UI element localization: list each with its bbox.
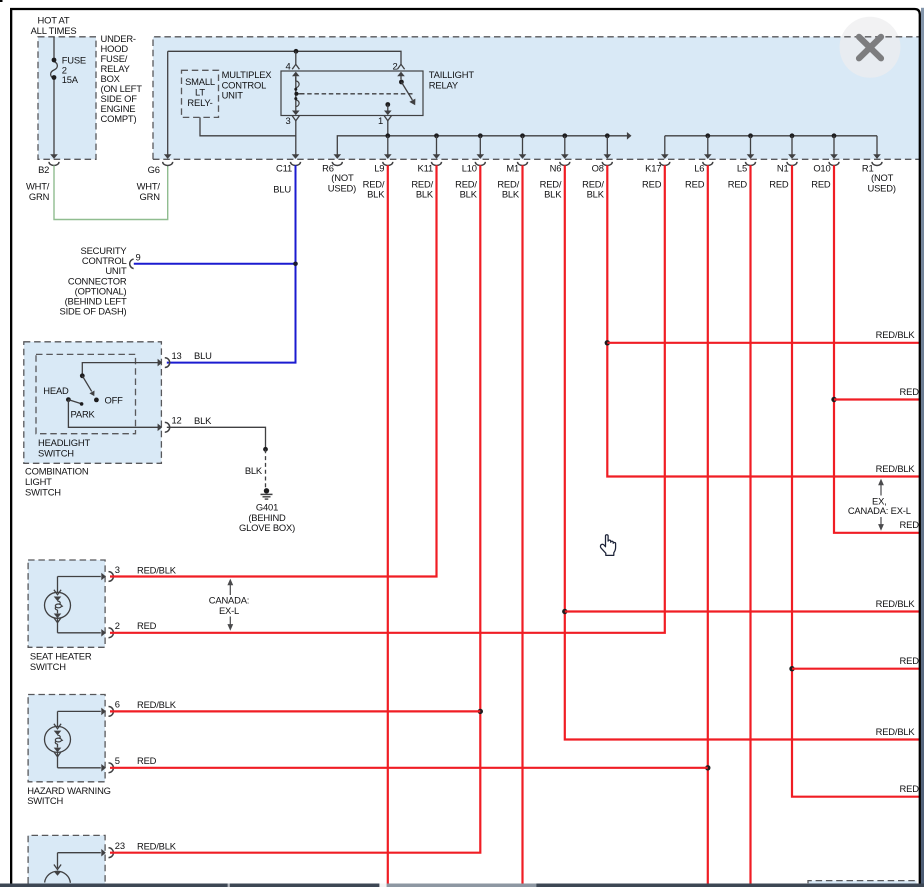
svg-text:SIDE OF DASH): SIDE OF DASH) <box>60 306 127 317</box>
svg-text:BLK: BLK <box>416 189 434 200</box>
svg-text:RED/BLK: RED/BLK <box>137 699 177 710</box>
svg-text:5: 5 <box>115 755 120 766</box>
svg-text:BLK: BLK <box>544 189 562 200</box>
svg-text:CANADA: EX-L: CANADA: EX-L <box>848 505 911 516</box>
svg-text:GRN: GRN <box>140 191 160 202</box>
svg-text:N1: N1 <box>777 162 789 173</box>
svg-text:L9: L9 <box>374 162 384 173</box>
svg-text:RED: RED <box>137 755 157 766</box>
svg-text:K11: K11 <box>418 162 433 173</box>
svg-text:BLK: BLK <box>245 465 263 476</box>
svg-text:USED): USED) <box>328 183 356 194</box>
svg-text:3: 3 <box>115 564 120 575</box>
svg-text:12: 12 <box>172 415 182 426</box>
svg-text:RELAY: RELAY <box>429 79 459 90</box>
svg-text:RED: RED <box>728 179 748 190</box>
svg-text:SWITCH: SWITCH <box>30 661 66 672</box>
svg-text:M1: M1 <box>506 162 519 173</box>
svg-text:C11: C11 <box>276 162 292 173</box>
svg-text:RED: RED <box>900 655 920 666</box>
svg-text:BLU: BLU <box>194 350 212 361</box>
svg-text:SWITCH: SWITCH <box>25 486 61 497</box>
svg-text:RELY-: RELY- <box>187 97 212 108</box>
svg-text:15A: 15A <box>62 74 79 85</box>
svg-text:HEAD: HEAD <box>43 385 69 396</box>
svg-text:RED/BLK: RED/BLK <box>137 840 177 851</box>
svg-text:RED: RED <box>900 519 920 530</box>
svg-text:RED/BLK: RED/BLK <box>137 564 177 575</box>
svg-text:BLK: BLK <box>587 189 605 200</box>
svg-text:2: 2 <box>392 60 397 71</box>
svg-text:BLK: BLK <box>460 189 478 200</box>
svg-text:13: 13 <box>172 350 182 361</box>
svg-text:GLOVE BOX): GLOVE BOX) <box>239 522 295 533</box>
svg-text:9: 9 <box>136 252 141 263</box>
svg-text:3: 3 <box>285 115 290 126</box>
svg-text:6: 6 <box>115 699 120 710</box>
svg-text:G6: G6 <box>148 164 160 175</box>
svg-text:UNIT: UNIT <box>222 90 244 101</box>
svg-text:RED: RED <box>685 179 705 190</box>
svg-text:ALL TIMES: ALL TIMES <box>31 25 77 36</box>
svg-text:O8: O8 <box>592 162 604 173</box>
svg-text:COMPT): COMPT) <box>101 113 137 124</box>
svg-text:GRN: GRN <box>29 191 49 202</box>
svg-text:BLK: BLK <box>194 415 212 426</box>
svg-text:RED: RED <box>769 179 789 190</box>
svg-text:RED: RED <box>811 179 831 190</box>
svg-text:OFF: OFF <box>105 394 124 405</box>
svg-text:L5: L5 <box>737 162 747 173</box>
svg-text:RED/BLK: RED/BLK <box>876 598 916 609</box>
svg-text:SWITCH: SWITCH <box>38 447 74 458</box>
svg-text:RED: RED <box>900 386 920 397</box>
svg-text:23: 23 <box>115 840 125 851</box>
svg-text:B2: B2 <box>38 164 49 175</box>
svg-text:RED: RED <box>642 179 662 190</box>
svg-text:RED: RED <box>900 783 920 794</box>
svg-text:K17: K17 <box>645 162 661 173</box>
svg-text:BLK: BLK <box>502 189 520 200</box>
svg-text:L6: L6 <box>694 162 704 173</box>
svg-text:SWITCH: SWITCH <box>27 795 63 806</box>
svg-text:EX-L: EX-L <box>219 605 239 616</box>
svg-text:RED/BLK: RED/BLK <box>876 726 916 737</box>
svg-text:RED/BLK: RED/BLK <box>876 329 916 340</box>
svg-text:PARK: PARK <box>71 408 96 419</box>
svg-text:RED/BLK: RED/BLK <box>876 463 916 474</box>
svg-text:L10: L10 <box>462 162 477 173</box>
svg-text:1: 1 <box>378 115 383 126</box>
svg-text:RED: RED <box>137 620 157 631</box>
svg-text:USED): USED) <box>868 183 896 194</box>
svg-text:4: 4 <box>285 60 290 71</box>
svg-text:O10: O10 <box>813 162 830 173</box>
svg-text:BLU: BLU <box>273 183 291 194</box>
svg-text:N6: N6 <box>550 162 562 173</box>
svg-text:2: 2 <box>115 620 120 631</box>
svg-text:BLK: BLK <box>367 189 385 200</box>
